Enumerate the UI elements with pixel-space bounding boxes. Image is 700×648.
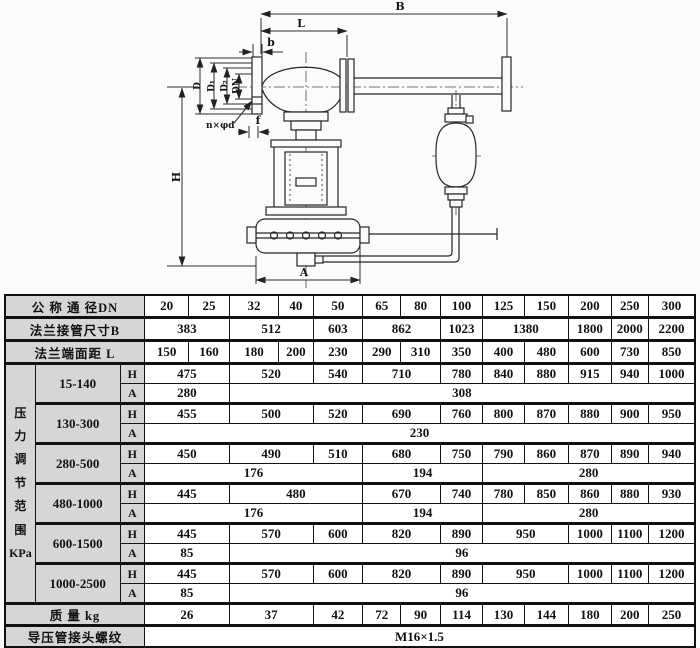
value-cell: 570 bbox=[229, 524, 313, 544]
dim-label-A: A bbox=[299, 266, 309, 279]
yoke-top-plate bbox=[271, 140, 341, 147]
value-cell: 510 bbox=[313, 444, 363, 464]
diaphragm-lip-right bbox=[360, 227, 369, 243]
value-cell: 180 bbox=[569, 604, 611, 626]
pot-top-flange-1 bbox=[448, 108, 464, 114]
value-cell: 1023 bbox=[440, 318, 482, 341]
value-cell: 250 bbox=[611, 295, 648, 318]
value-cell: 600 bbox=[569, 341, 611, 364]
value-cell: 100 bbox=[440, 295, 482, 318]
outlet-flange-1 bbox=[340, 59, 346, 112]
pot-bottom-flange-1 bbox=[445, 187, 467, 194]
dim-label-D1: D₁ bbox=[207, 80, 217, 92]
value-cell: 800 bbox=[483, 404, 524, 424]
value-cell: 350 bbox=[440, 341, 482, 364]
value-cell: 520 bbox=[313, 404, 363, 424]
value-cell: 512 bbox=[229, 318, 313, 341]
value-cell: 20 bbox=[144, 295, 188, 318]
row-label-cell: 质 量 kg bbox=[5, 604, 144, 626]
value-cell: M16×1.5 bbox=[144, 626, 695, 648]
value-cell: 250 bbox=[648, 604, 695, 626]
value-cell: 750 bbox=[440, 444, 482, 464]
value-cell: 200 bbox=[279, 341, 313, 364]
catalog-page: B L b D D₁ D₂ bbox=[0, 0, 700, 609]
value-cell: 480 bbox=[524, 341, 568, 364]
value-cell: 300 bbox=[648, 295, 695, 318]
row-label-cell: A bbox=[120, 464, 144, 484]
row-label-cell: A bbox=[120, 584, 144, 604]
value-cell: 690 bbox=[363, 404, 441, 424]
value-cell: 310 bbox=[401, 341, 440, 364]
value-cell: 600 bbox=[313, 564, 363, 584]
value-cell: 40 bbox=[279, 295, 313, 318]
row-label-cell: 15-140 bbox=[35, 364, 120, 404]
value-cell: 890 bbox=[440, 524, 482, 544]
table-row: 130-300H455500520690760800870880900950 bbox=[5, 404, 695, 424]
value-cell: 670 bbox=[363, 484, 441, 504]
value-cell: 26 bbox=[144, 604, 229, 626]
table-row: 压 力 调 节 范 围 KPa15-140H475520540710780840… bbox=[5, 364, 695, 384]
row-label-cell: 130-300 bbox=[35, 404, 120, 444]
value-cell: 96 bbox=[229, 544, 695, 564]
bonnet-flange bbox=[284, 112, 328, 121]
value-cell: 80 bbox=[401, 295, 440, 318]
value-cell: 570 bbox=[229, 564, 313, 584]
dim-label-L: L bbox=[297, 17, 305, 30]
row-label-cell: 法兰端面距 L bbox=[5, 341, 144, 364]
row-label-cell: H bbox=[120, 404, 144, 424]
value-cell: 850 bbox=[648, 341, 695, 364]
value-cell: 730 bbox=[611, 341, 648, 364]
value-cell: 540 bbox=[313, 364, 363, 384]
value-cell: 72 bbox=[363, 604, 401, 626]
value-cell: 840 bbox=[483, 364, 524, 384]
dim-label-DN: DN bbox=[232, 78, 242, 94]
value-cell: 290 bbox=[363, 341, 401, 364]
value-cell: 130 bbox=[483, 604, 524, 626]
value-cell: 230 bbox=[144, 424, 695, 444]
condensate-pot-body bbox=[436, 123, 476, 187]
value-cell: 790 bbox=[483, 444, 524, 464]
value-cell: 50 bbox=[313, 295, 363, 318]
value-cell: 880 bbox=[524, 364, 568, 384]
valve-drawing-area: B L b D D₁ D₂ bbox=[0, 0, 700, 293]
value-cell: 400 bbox=[483, 341, 524, 364]
value-cell: 1000 bbox=[648, 364, 695, 384]
value-cell: 176 bbox=[144, 504, 362, 524]
table-row: 法兰接管尺寸B38351260386210231380180020002200 bbox=[5, 318, 695, 341]
pot-bottom-flange-2 bbox=[448, 194, 464, 200]
value-cell: 37 bbox=[229, 604, 313, 626]
value-cell: 144 bbox=[524, 604, 568, 626]
row-label-cell: 480-1000 bbox=[35, 484, 120, 524]
value-cell: 850 bbox=[524, 484, 568, 504]
valve-technical-drawing: B L b D D₁ D₂ bbox=[0, 0, 700, 293]
value-cell: 1800 bbox=[569, 318, 611, 341]
value-cell: 520 bbox=[229, 364, 313, 384]
value-cell: 42 bbox=[313, 604, 363, 626]
value-cell: 940 bbox=[611, 364, 648, 384]
value-cell: 950 bbox=[483, 524, 569, 544]
value-cell: 740 bbox=[440, 484, 482, 504]
bottom-connector bbox=[297, 253, 315, 266]
pot-top-flange-2 bbox=[445, 114, 467, 122]
value-cell: 862 bbox=[363, 318, 441, 341]
value-cell: 32 bbox=[229, 295, 279, 318]
table-row: 600-1500H445570600820890950100011001200 bbox=[5, 524, 695, 544]
value-cell: 940 bbox=[648, 444, 695, 464]
value-cell: 890 bbox=[440, 564, 482, 584]
value-cell: 114 bbox=[440, 604, 482, 626]
value-cell: 180 bbox=[229, 341, 279, 364]
value-cell: 950 bbox=[648, 404, 695, 424]
dim-label-f: f bbox=[256, 114, 262, 127]
packing-gland bbox=[296, 130, 316, 140]
value-cell: 600 bbox=[313, 524, 363, 544]
value-cell: 500 bbox=[229, 404, 313, 424]
value-cell: 680 bbox=[363, 444, 441, 464]
value-cell: 1100 bbox=[611, 524, 648, 544]
value-cell: 760 bbox=[440, 404, 482, 424]
value-cell: 1380 bbox=[483, 318, 569, 341]
value-cell: 603 bbox=[313, 318, 363, 341]
row-label-cell: H bbox=[120, 484, 144, 504]
dim-label-bolt-spec: n×φd bbox=[206, 121, 235, 131]
value-cell: 900 bbox=[611, 404, 648, 424]
table-row: 480-1000H445480670740780850860880930 bbox=[5, 484, 695, 504]
value-cell: 475 bbox=[144, 364, 229, 384]
dim-label-D: D bbox=[193, 82, 203, 90]
value-cell: 280 bbox=[483, 504, 695, 524]
value-cell: 930 bbox=[648, 484, 695, 504]
spring-seat bbox=[296, 178, 316, 186]
value-cell: 308 bbox=[229, 384, 695, 404]
row-label-cell: H bbox=[120, 444, 144, 464]
row-label-cell: A bbox=[120, 384, 144, 404]
value-cell: 1200 bbox=[648, 564, 695, 584]
table-row: 公 称 通 径DN2025324050658010012515020025030… bbox=[5, 295, 695, 318]
value-cell: 2200 bbox=[648, 318, 695, 341]
row-label-cell: 600-1500 bbox=[35, 524, 120, 564]
row-label-cell: 法兰接管尺寸B bbox=[5, 318, 144, 341]
bonnet-neck bbox=[291, 121, 321, 130]
value-cell: 2000 bbox=[611, 318, 648, 341]
value-cell: 125 bbox=[483, 295, 524, 318]
value-cell: 383 bbox=[144, 318, 229, 341]
value-cell: 820 bbox=[363, 564, 441, 584]
value-cell: 96 bbox=[229, 584, 695, 604]
value-cell: 85 bbox=[144, 544, 229, 564]
value-cell: 950 bbox=[483, 564, 569, 584]
value-cell: 280 bbox=[144, 384, 229, 404]
value-cell: 780 bbox=[483, 484, 524, 504]
value-cell: 150 bbox=[144, 341, 188, 364]
table-row: 质 量 kg2637427290114130144180200250 bbox=[5, 604, 695, 626]
dim-label-D2: D₂ bbox=[220, 80, 230, 92]
value-cell: 490 bbox=[229, 444, 313, 464]
value-cell: 194 bbox=[363, 504, 483, 524]
row-label-cell: 压 力 调 节 范 围 KPa bbox=[5, 364, 35, 604]
value-cell: 230 bbox=[313, 341, 363, 364]
value-cell: 915 bbox=[569, 364, 611, 384]
value-cell: 200 bbox=[611, 604, 648, 626]
value-cell: 160 bbox=[189, 341, 229, 364]
row-label-cell: 公 称 通 径DN bbox=[5, 295, 144, 318]
value-cell: 480 bbox=[229, 484, 362, 504]
table-row: 1000-2500H445570600820890950100011001200 bbox=[5, 564, 695, 584]
yoke-bottom-plate bbox=[266, 207, 346, 215]
pot-side-plug bbox=[466, 116, 473, 123]
value-cell: 880 bbox=[569, 404, 611, 424]
value-cell: 194 bbox=[363, 464, 483, 484]
value-cell: 85 bbox=[144, 584, 229, 604]
dim-label-H: H bbox=[170, 172, 183, 182]
diaphragm-lip-left bbox=[247, 227, 256, 243]
diaphragm-housing bbox=[256, 219, 360, 253]
table-body: 公 称 通 径DN2025324050658010012515020025030… bbox=[5, 295, 695, 647]
table-row: 280-500H450490510680750790860870890940 bbox=[5, 444, 695, 464]
inlet-flange bbox=[252, 57, 262, 114]
value-cell: 860 bbox=[569, 484, 611, 504]
value-cell: 1100 bbox=[611, 564, 648, 584]
dimension-spec-table: 公 称 通 径DN2025324050658010012515020025030… bbox=[4, 294, 696, 648]
bottom-connector-outlet bbox=[315, 256, 323, 263]
value-cell: 445 bbox=[144, 484, 229, 504]
value-cell: 780 bbox=[440, 364, 482, 384]
value-cell: 65 bbox=[363, 295, 401, 318]
value-cell: 1000 bbox=[569, 524, 611, 544]
valve-body-dome bbox=[262, 67, 344, 86]
row-label-cell: 280-500 bbox=[35, 444, 120, 484]
row-label-cell: 1000-2500 bbox=[35, 564, 120, 604]
value-cell: 90 bbox=[401, 604, 440, 626]
row-label-cell: 导压管接头螺纹 bbox=[5, 626, 144, 648]
row-label-cell: A bbox=[120, 424, 144, 444]
row-label-cell: A bbox=[120, 504, 144, 524]
row-label-cell: H bbox=[120, 364, 144, 384]
value-cell: 150 bbox=[524, 295, 568, 318]
value-cell: 890 bbox=[611, 444, 648, 464]
pot-bottom-neck bbox=[450, 200, 462, 207]
value-cell: 450 bbox=[144, 444, 229, 464]
pipe-end-flange bbox=[502, 57, 511, 111]
value-cell: 1200 bbox=[648, 524, 695, 544]
value-cell: 455 bbox=[144, 404, 229, 424]
value-cell: 860 bbox=[524, 444, 568, 464]
row-label-cell: H bbox=[120, 564, 144, 584]
value-cell: 820 bbox=[363, 524, 441, 544]
row-label-cell: H bbox=[120, 524, 144, 544]
dim-label-B: B bbox=[395, 0, 404, 13]
value-cell: 870 bbox=[524, 404, 568, 424]
outlet-flange-2 bbox=[348, 59, 354, 112]
dim-label-b: b bbox=[267, 36, 275, 49]
value-cell: 710 bbox=[363, 364, 441, 384]
table-row: 导压管接头螺纹M16×1.5 bbox=[5, 626, 695, 648]
value-cell: 280 bbox=[483, 464, 695, 484]
value-cell: 870 bbox=[569, 444, 611, 464]
value-cell: 1000 bbox=[569, 564, 611, 584]
value-cell: 200 bbox=[569, 295, 611, 318]
value-cell: 880 bbox=[611, 484, 648, 504]
value-cell: 445 bbox=[144, 564, 229, 584]
value-cell: 176 bbox=[144, 464, 362, 484]
value-cell: 25 bbox=[189, 295, 229, 318]
value-cell: 445 bbox=[144, 524, 229, 544]
valve-body-bottom bbox=[262, 89, 344, 112]
table-row: 法兰端面距 L150160180200230290310350400480600… bbox=[5, 341, 695, 364]
row-label-cell: A bbox=[120, 544, 144, 564]
